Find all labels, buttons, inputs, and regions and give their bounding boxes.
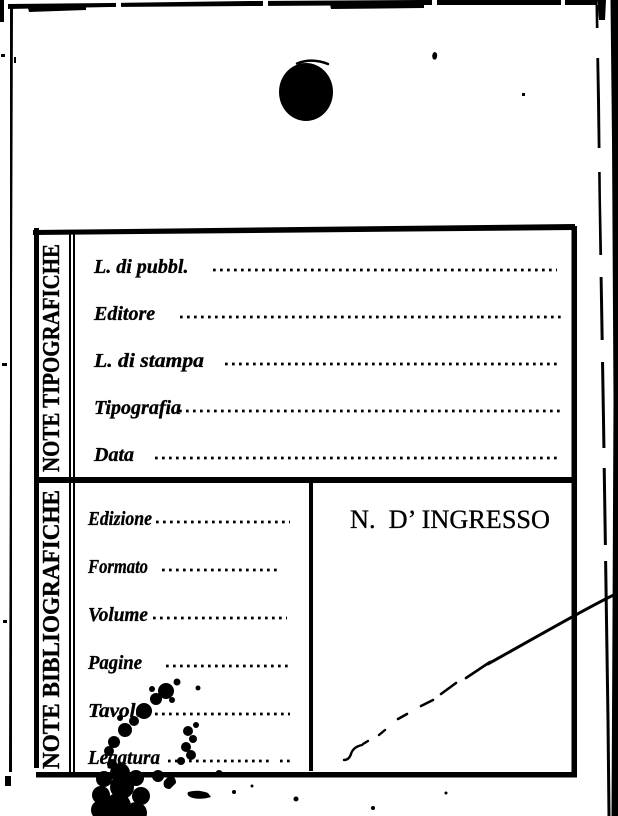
svg-text:L. di pubbl.: L. di pubbl.	[93, 256, 188, 278]
svg-text:Volume: Volume	[88, 604, 148, 626]
svg-text:NOTE TIPOGRAFICHE: NOTE TIPOGRAFICHE	[39, 244, 65, 472]
svg-text:L. di stampa: L. di stampa	[93, 350, 204, 372]
svg-text:N. D’ INGRESSO: N. D’ INGRESSO	[350, 505, 550, 534]
svg-text:Editore: Editore	[93, 303, 155, 325]
svg-text:Edizione: Edizione	[87, 508, 152, 530]
svg-text:Data: Data	[93, 444, 134, 466]
svg-text:Pagine: Pagine	[87, 652, 142, 674]
svg-text:Formato: Formato	[87, 556, 148, 578]
svg-text:NOTE BIBLIOGRAFICHE: NOTE BIBLIOGRAFICHE	[39, 490, 65, 769]
svg-text:Tipografia: Tipografia	[94, 397, 181, 419]
